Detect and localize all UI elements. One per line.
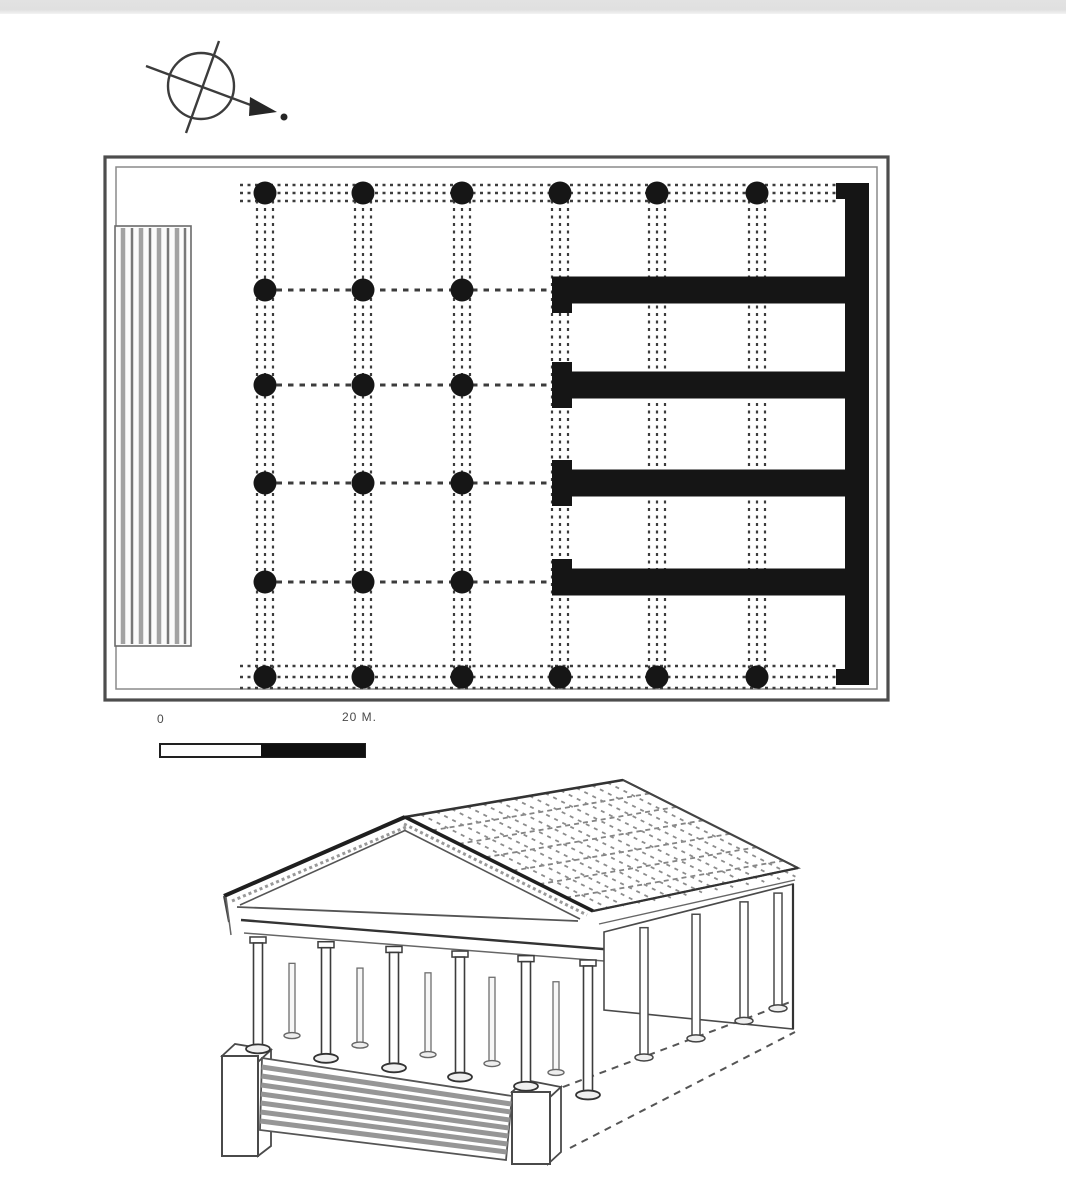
scalebar-zero-label: 0 (157, 712, 165, 726)
scanned-figure-page: 0 20 M. (0, 0, 1066, 1200)
compass-north-arrow (146, 41, 288, 133)
figure-svg (0, 0, 1066, 1200)
scale-bar (160, 744, 365, 757)
temple-floor-plan (105, 157, 888, 700)
scalebar-distance-label: 20 M. (342, 710, 377, 724)
plan-front-stairs (115, 226, 191, 646)
